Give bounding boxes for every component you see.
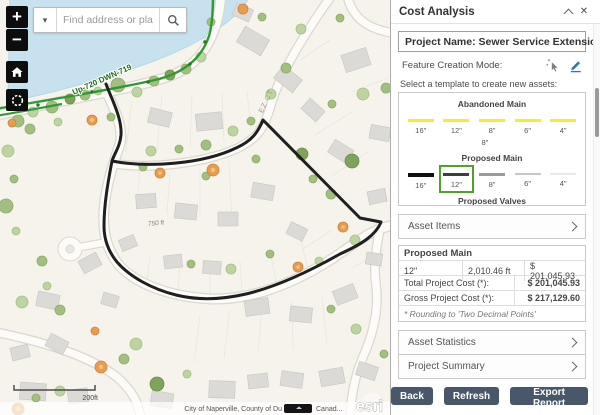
group-title-abandoned: Abandoned Main <box>399 99 585 109</box>
select-template-label: Select a template to create new assets: <box>398 78 586 92</box>
proposed-template-row: 16" 12" 8" 6" <box>399 165 585 193</box>
search-button[interactable] <box>159 8 186 32</box>
line-swatch <box>515 173 541 175</box>
export-report-button[interactable]: Export Report <box>510 387 588 405</box>
search-input[interactable] <box>57 8 159 32</box>
scale-label: 200ft <box>82 395 98 402</box>
cost-table: Proposed Main 12" 2,010.46 ft $ 201,045.… <box>398 245 586 322</box>
line-swatch <box>408 119 434 122</box>
attribution-popup[interactable] <box>284 404 312 413</box>
search-icon <box>167 14 180 27</box>
template-abandoned-16[interactable]: 16" <box>403 111 439 138</box>
attribution-text-left: City of Naperville, County of Du <box>184 406 282 413</box>
esri-logo[interactable]: esri <box>356 398 383 415</box>
close-panel-button[interactable]: ✕ <box>576 4 592 20</box>
search-widget: ▾ <box>33 7 187 33</box>
home-icon <box>10 65 24 79</box>
panel-title: Cost Analysis <box>399 6 560 18</box>
search-source-dropdown[interactable]: ▾ <box>34 8 57 32</box>
map-graphics: EZ CT 750 ft Up-720 DWN-719 200ft <box>0 0 390 415</box>
template-proposed-16[interactable]: 16" <box>403 165 439 193</box>
asset-statistics-section[interactable]: Asset Statistics <box>398 330 586 355</box>
panel-scrollbar <box>593 24 600 415</box>
collapse-panel-button[interactable] <box>560 4 576 20</box>
abandoned-template-row: 16" 12" 8" 6" <box>399 111 585 138</box>
chevron-right-icon <box>568 222 578 232</box>
back-button[interactable]: Back <box>391 387 433 405</box>
cost-analysis-panel: Cost Analysis ✕ Project Name: Sewer Serv… <box>390 0 600 415</box>
attribution-text-right: Canad... <box>316 406 343 413</box>
chevron-right-icon <box>568 362 578 372</box>
template-gallery: Abandoned Main 16" 12" 8" <box>398 92 586 206</box>
project-summary-section[interactable]: Project Summary <box>398 354 586 379</box>
rounding-note: * Rounding to 'Two Decimal Points' <box>399 306 585 321</box>
panel-body: Project Name: Sewer Service Extension Fe… <box>391 24 600 415</box>
chevron-up-icon <box>563 8 573 18</box>
template-abandoned-8-wrapped[interactable]: 8" <box>467 136 503 150</box>
total-cost-row: Total Project Cost (*): $ 201,045.93 <box>399 276 585 291</box>
panel-buttons: Back Refresh Export Report <box>391 387 588 405</box>
line-swatch <box>550 173 576 175</box>
refresh-button[interactable]: Refresh <box>444 387 499 405</box>
feature-creation-mode-label: Feature Creation Mode: <box>402 60 502 71</box>
template-abandoned-4[interactable]: 4" <box>545 111 581 138</box>
feature-creation-mode-row: Feature Creation Mode: <box>398 52 586 78</box>
group-title-valves: Proposed Valves <box>399 196 585 206</box>
abandoned-template-wrapped-row: 8" <box>399 136 585 150</box>
template-proposed-12-selected[interactable]: 12" <box>439 165 475 193</box>
auto-mode-button[interactable] <box>544 56 562 74</box>
template-abandoned-6[interactable]: 6" <box>510 111 546 138</box>
table-row: 12" 2,010.46 ft $ 201,045.93 <box>399 261 585 276</box>
line-swatch <box>479 119 505 122</box>
line-swatch <box>515 119 541 122</box>
template-abandoned-8[interactable]: 8" <box>474 111 510 138</box>
template-proposed-8[interactable]: 8" <box>474 165 510 193</box>
zoom-out-button[interactable]: − <box>6 29 28 51</box>
template-proposed-6[interactable]: 6" <box>510 165 546 193</box>
group-title-proposed: Proposed Main <box>399 153 585 163</box>
asset-items-section[interactable]: Asset Items <box>398 214 586 239</box>
line-swatch <box>443 119 469 122</box>
template-proposed-4[interactable]: 4" <box>545 165 581 193</box>
panel-header: Cost Analysis ✕ <box>391 0 600 24</box>
panel-scrollbar-thumb[interactable] <box>595 88 599 137</box>
smart-cursor-icon <box>546 58 561 73</box>
chevron-right-icon <box>568 338 578 348</box>
line-swatch <box>408 173 434 177</box>
project-name: Project Name: Sewer Service Extension <box>398 31 586 52</box>
line-swatch <box>479 173 505 176</box>
home-extent-button[interactable] <box>6 61 28 83</box>
line-swatch <box>550 119 576 122</box>
app-window: EZ CT 750 ft Up-720 DWN-719 200ft <box>0 0 600 415</box>
map-canvas[interactable]: EZ CT 750 ft Up-720 DWN-719 200ft <box>0 0 390 415</box>
gross-cost-row: Gross Project Cost (*): $ 217,129.60 <box>399 291 585 306</box>
cost-table-group-header: Proposed Main <box>399 246 585 261</box>
locate-button[interactable] <box>6 89 28 111</box>
pencil-icon <box>568 58 583 73</box>
draw-mode-button[interactable] <box>566 56 584 74</box>
locate-icon <box>10 93 25 108</box>
template-abandoned-12[interactable]: 12" <box>439 111 475 138</box>
zoom-in-button[interactable]: + <box>6 6 28 28</box>
line-swatch <box>443 173 469 176</box>
